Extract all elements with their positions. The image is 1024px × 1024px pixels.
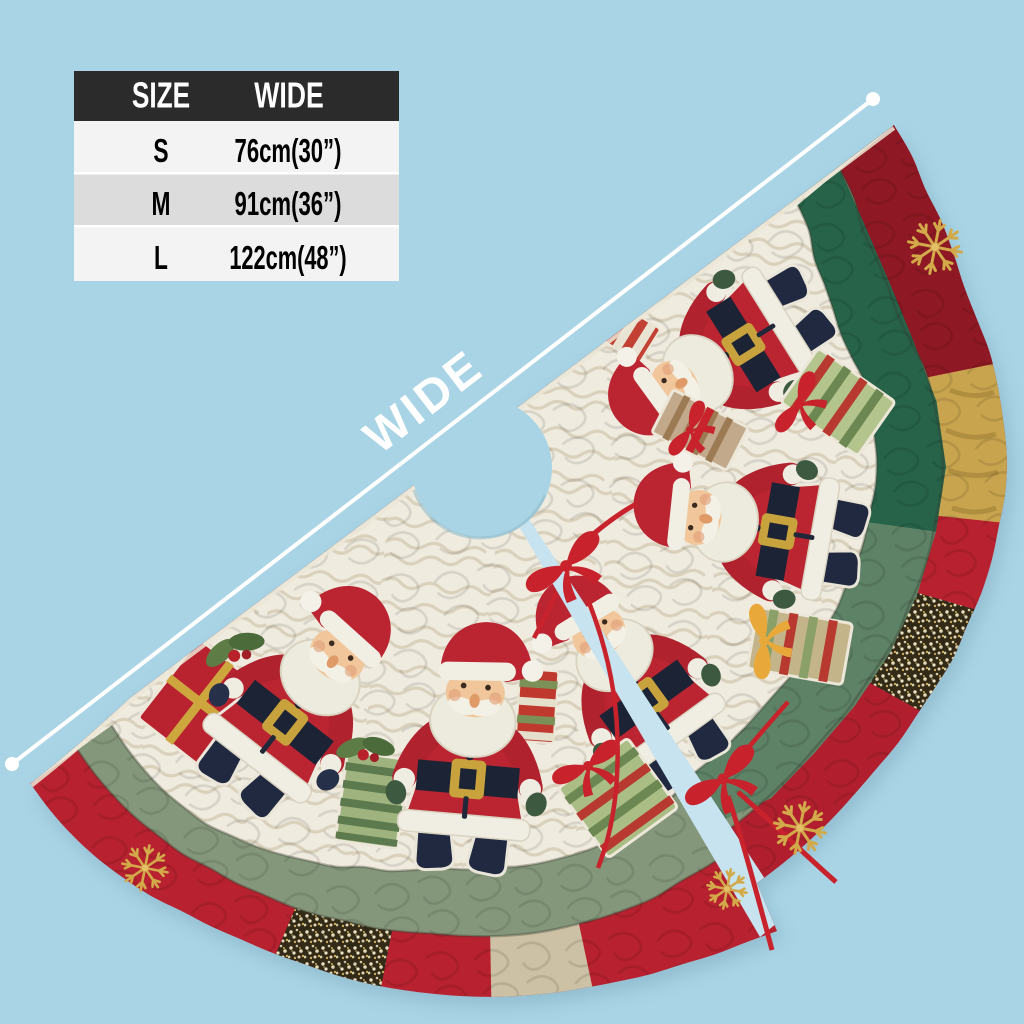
svg-text:M: M	[152, 186, 171, 223]
svg-text:76cm(30”): 76cm(30”)	[235, 133, 342, 169]
svg-text:WIDE: WIDE	[254, 75, 324, 116]
svg-text:S: S	[153, 133, 168, 170]
svg-text:SIZE: SIZE	[132, 74, 190, 115]
svg-text:L: L	[154, 240, 168, 277]
svg-text:91cm(36”): 91cm(36”)	[235, 186, 342, 222]
svg-text:122cm(48”): 122cm(48”)	[229, 239, 346, 276]
